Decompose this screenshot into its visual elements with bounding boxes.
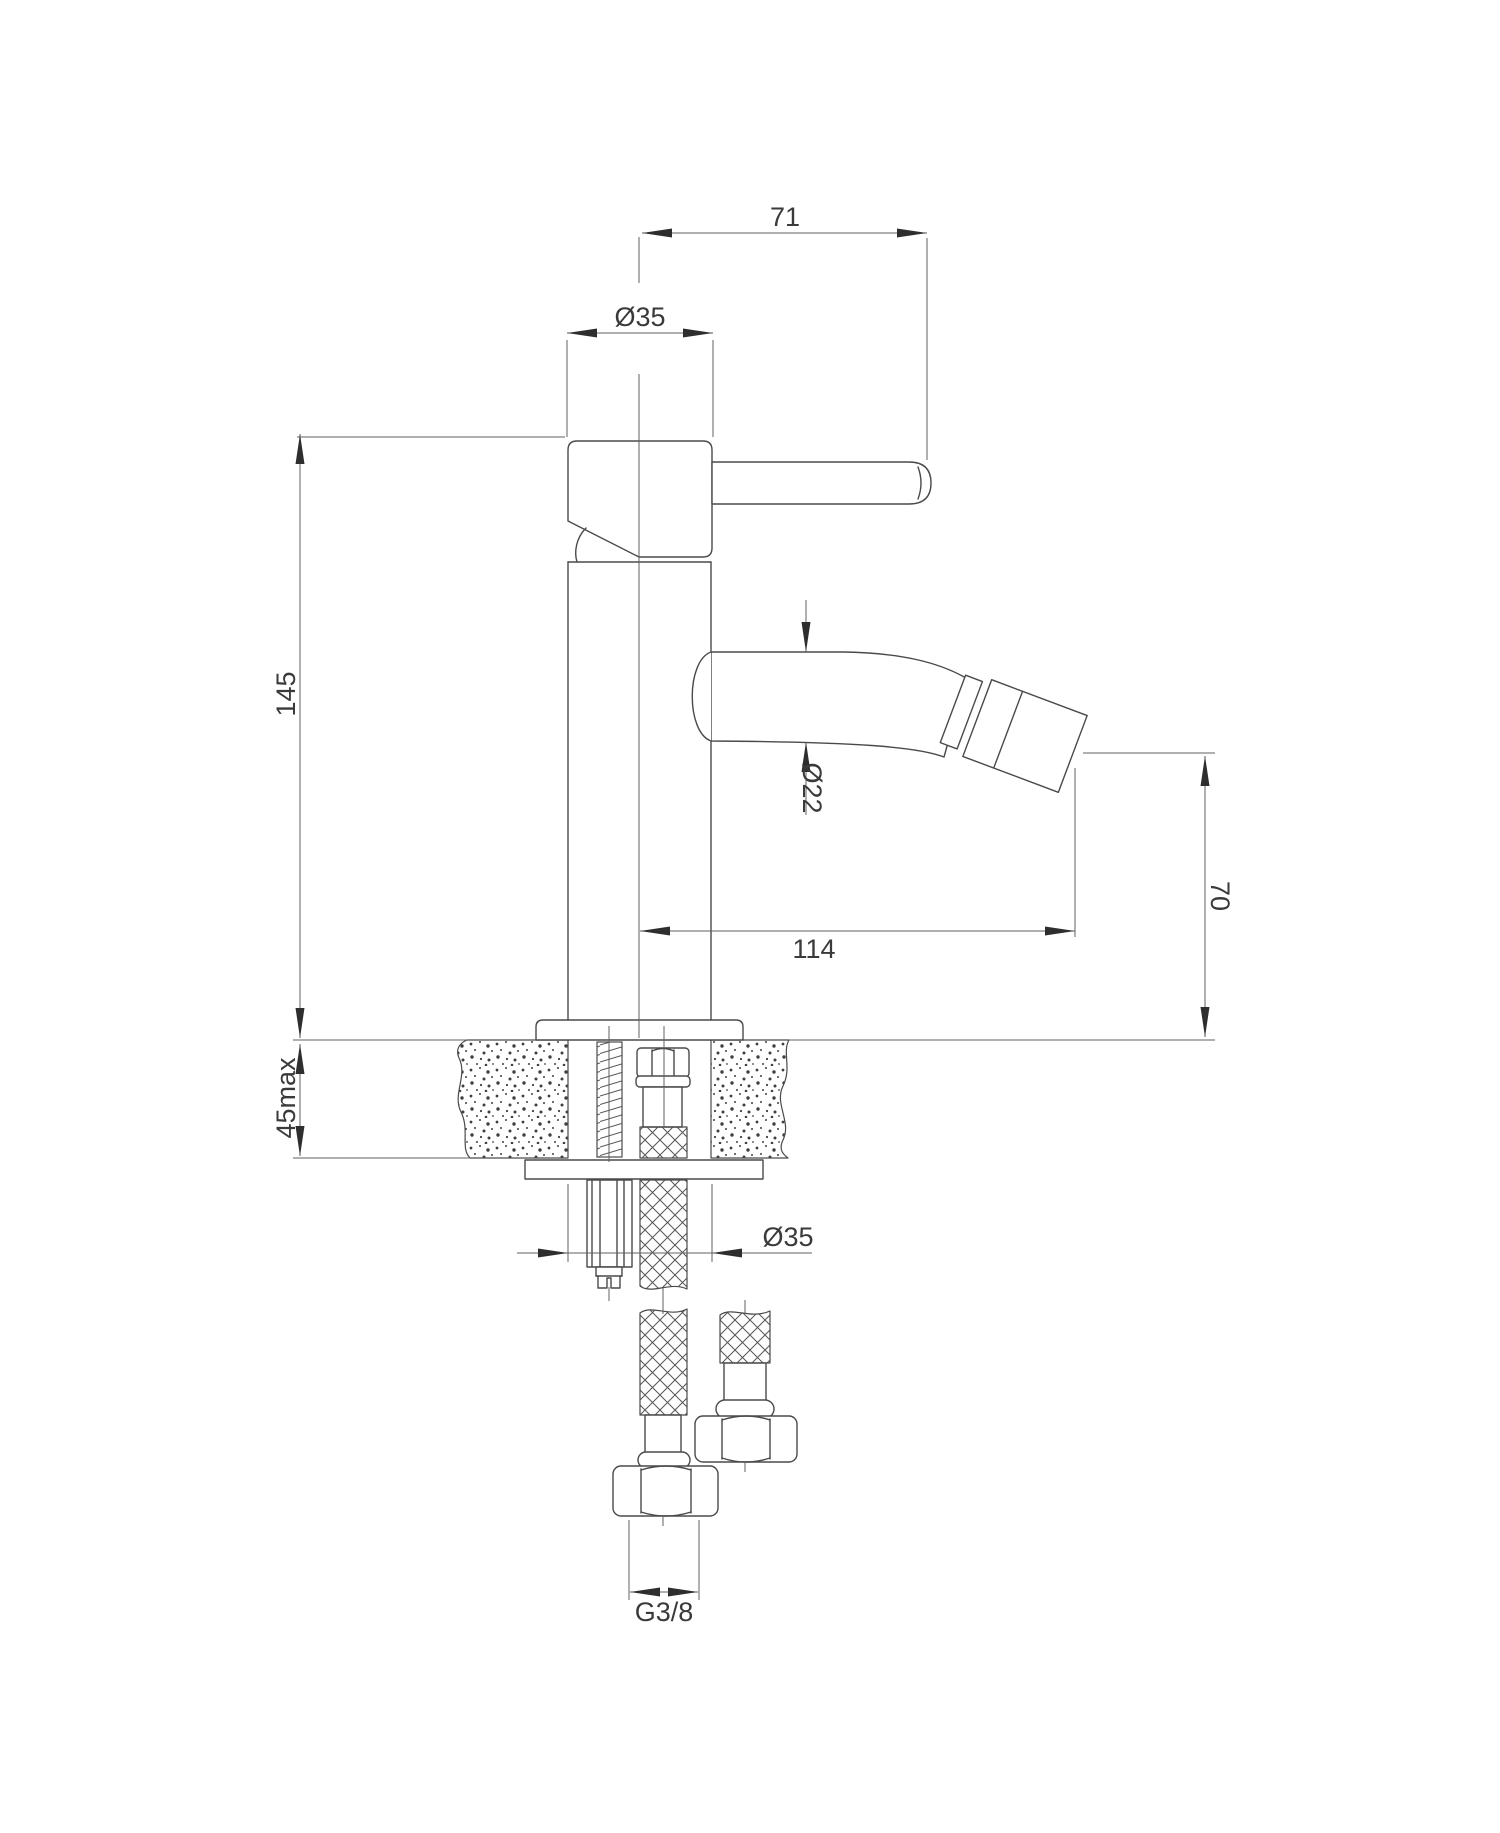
- drawing-page: 71 Ø35 145 45max Ø22 70 114: [0, 0, 1500, 1833]
- technical-drawing-canvas: 71 Ø35 145 45max Ø22 70 114: [0, 0, 1500, 1833]
- dim-supply-thread-label: G3/8: [635, 1597, 694, 1627]
- dim-deck-thickness-label: 45max: [271, 1057, 301, 1139]
- hose-right-hex-nut: [695, 1416, 797, 1462]
- dim-spout-projection-label: 114: [792, 934, 835, 964]
- dim-deck-thickness: 45max: [271, 1044, 305, 1156]
- dim-spout-diameter-label: Ø22: [797, 762, 827, 813]
- dim-body-diameter-bottom-label: Ø35: [762, 1222, 813, 1252]
- hose-left-ferrule: [645, 1415, 681, 1453]
- hose-compression-nut-in-hole: [636, 1048, 690, 1127]
- hose-left-lower-segment: [640, 1309, 687, 1415]
- dim-outlet-height-label: 70: [1205, 881, 1235, 911]
- clamp-plate: [525, 1160, 763, 1179]
- hose-left-hex-nut: [613, 1466, 718, 1516]
- hose-left-upper-segment: [640, 1180, 687, 1289]
- background: [0, 0, 1500, 1833]
- hose-right-ferrule: [724, 1363, 766, 1402]
- countertop-left-block: [458, 1040, 568, 1158]
- faucet-handle-lever: [712, 462, 931, 504]
- dim-body-diameter-top-label: Ø35: [614, 302, 665, 332]
- hose-right-segment: [720, 1311, 770, 1363]
- countertop-right-block: [711, 1040, 789, 1158]
- dim-body-height-label: 145: [271, 671, 301, 716]
- spout: [692, 652, 966, 757]
- braided-hose-in-hole: [640, 1127, 687, 1158]
- dim-handle-projection-label: 71: [770, 202, 800, 232]
